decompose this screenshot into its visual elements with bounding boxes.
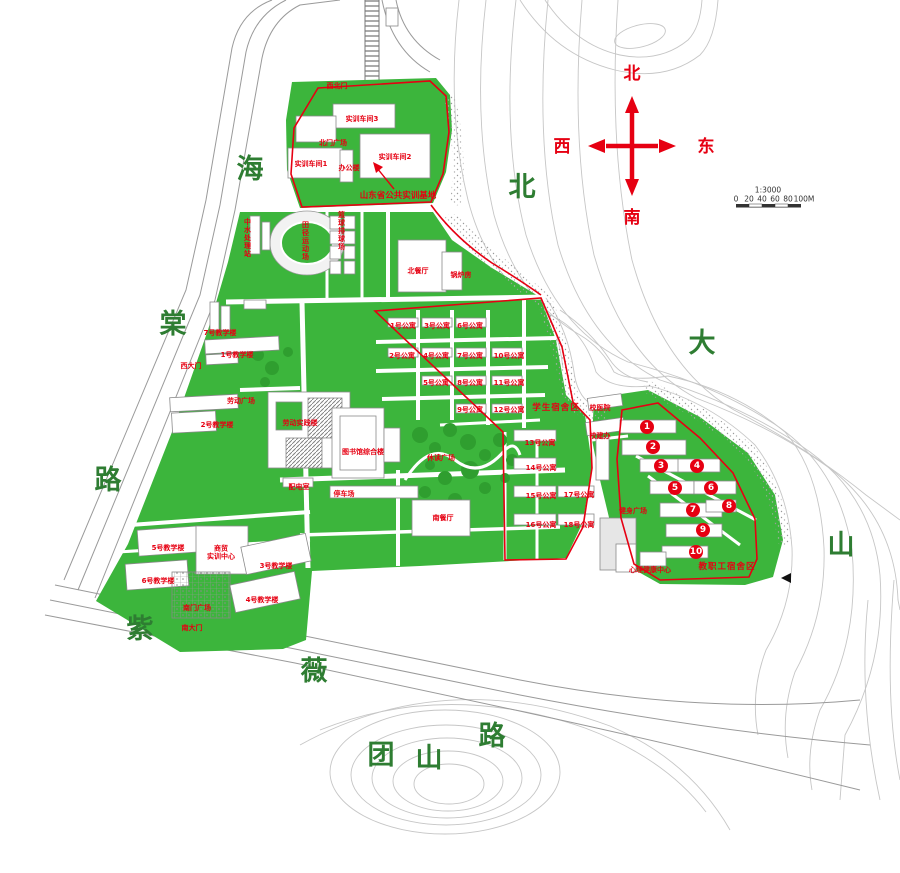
map-graphics [0,0,900,873]
railway [365,0,398,86]
campus-map: 北 南 西 东 1:3000 海棠路紫薇路团山北大山西北门实训车间3北门广场实训… [0,0,900,873]
compass-rose [588,96,676,196]
scale-bar [736,204,801,207]
south-gate-plaza-paving [172,572,230,618]
